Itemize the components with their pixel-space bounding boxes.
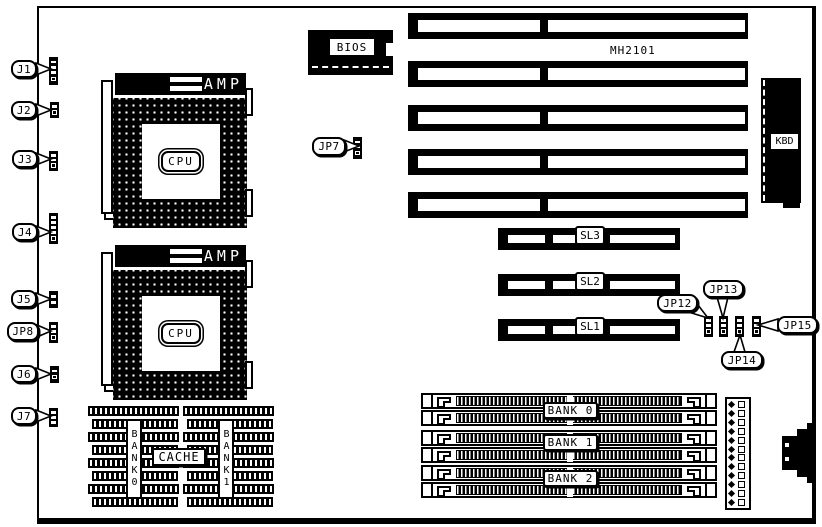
bank1-label: BANK 1 — [543, 434, 598, 451]
callout-j5: J5 — [11, 290, 37, 308]
callout-jp12-label: JP12 — [663, 298, 692, 309]
callout-tail-j7 — [36, 410, 51, 422]
callout-tail-jp13 — [717, 297, 728, 318]
callout-j1-label: J1 — [17, 64, 31, 75]
callout-tail-jp7 — [344, 140, 359, 152]
callout-jp15: JP15 — [777, 316, 818, 334]
callout-j6: J6 — [11, 365, 37, 383]
callout-jp7-label: JP7 — [318, 141, 339, 152]
callout-j4-label: J4 — [18, 227, 32, 238]
callout-leader-overlay — [0, 0, 822, 527]
callout-j3: J3 — [12, 150, 38, 168]
callout-jp8: JP8 — [7, 322, 39, 341]
callout-tail-j6 — [36, 368, 51, 380]
callout-jp14-label: JP14 — [728, 355, 757, 366]
callout-jp15-label: JP15 — [783, 320, 812, 331]
callout-tail-j3 — [36, 153, 51, 165]
callout-tail-j2 — [36, 104, 51, 116]
callout-j5-label: J5 — [17, 294, 31, 305]
callout-tail-jp15 — [758, 319, 778, 331]
callout-j7: J7 — [11, 407, 37, 425]
callout-j3-label: J3 — [18, 154, 32, 165]
callout-tail-j4 — [36, 226, 51, 238]
bank0-label: BANK 0 — [543, 402, 598, 419]
cache-bank0-label: BANK0 — [126, 419, 142, 499]
callout-tail-jp8 — [37, 325, 51, 337]
bank2-label: BANK 2 — [543, 470, 598, 487]
callout-jp13: JP13 — [703, 280, 744, 298]
cache-label: CACHE — [152, 448, 206, 466]
callout-jp12: JP12 — [657, 294, 698, 312]
callout-jp8-label: JP8 — [12, 326, 33, 337]
callout-tail-j1 — [36, 63, 51, 75]
callout-j2: J2 — [11, 101, 37, 119]
callout-tail-j5 — [36, 293, 51, 305]
callout-j6-label: J6 — [17, 369, 31, 380]
cache-bank1-label: BANK1 — [218, 419, 234, 499]
callout-jp13-label: JP13 — [709, 284, 738, 295]
callout-j7-label: J7 — [17, 411, 31, 422]
callout-j1: J1 — [11, 60, 37, 78]
motherboard-diagram: J1 J2 J3 J4 J5 JP8 J6 J7 AMP CPU AM — [0, 0, 822, 527]
callout-j2-label: J2 — [17, 105, 31, 116]
callout-tail-jp14 — [734, 335, 745, 352]
callout-jp14: JP14 — [721, 351, 763, 369]
callout-j4: J4 — [12, 223, 38, 241]
callout-jp7: JP7 — [312, 137, 346, 156]
